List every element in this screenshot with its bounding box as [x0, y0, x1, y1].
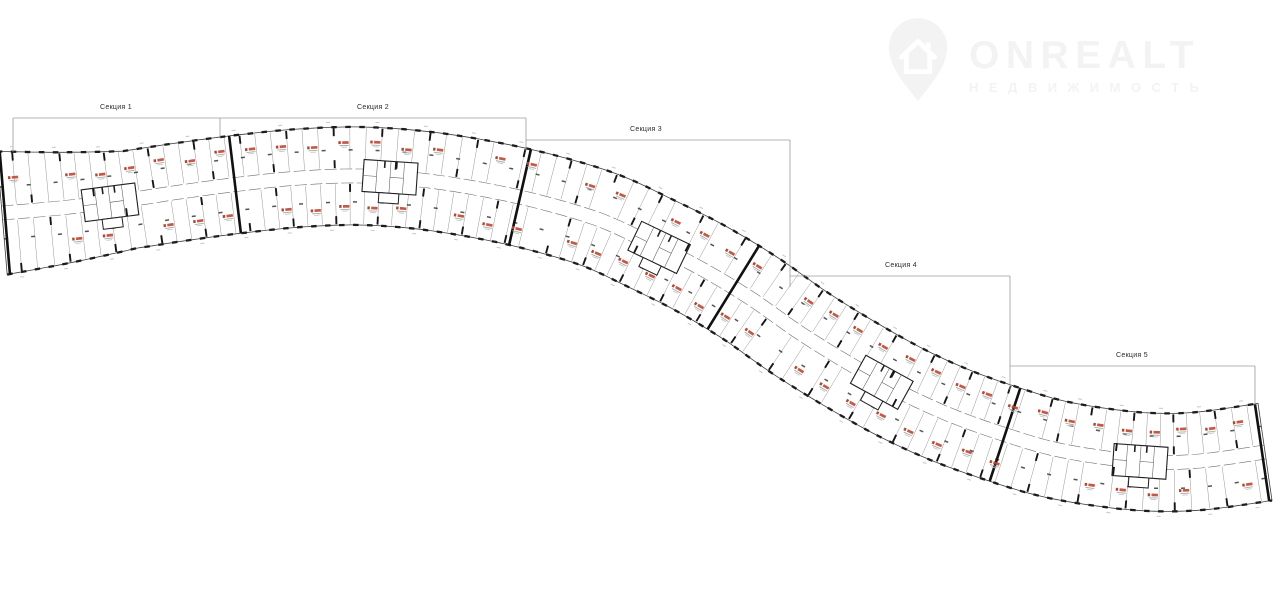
- section-label-1: Секция 1: [100, 103, 132, 112]
- section-label-2: Секция 2: [357, 103, 389, 112]
- logo-text: ONREALT НЕДВИЖИМОСТЬ: [969, 15, 1209, 95]
- house-pin-icon: [882, 15, 954, 110]
- section-label-3: Секция 3: [630, 125, 662, 134]
- logo: ONREALT НЕДВИЖИМОСТЬ: [882, 15, 1209, 110]
- floorplan-page: Секция 1 Секция 2 Секция 3 Секция 4 Секц…: [0, 0, 1280, 590]
- section-label-4: Секция 4: [885, 261, 917, 270]
- logo-brand-text: ONREALT: [969, 36, 1209, 75]
- section-label-5: Секция 5: [1116, 351, 1148, 360]
- building-outline: [0, 127, 1272, 512]
- logo-subtitle-text: НЕДВИЖИМОСТЬ: [969, 80, 1209, 95]
